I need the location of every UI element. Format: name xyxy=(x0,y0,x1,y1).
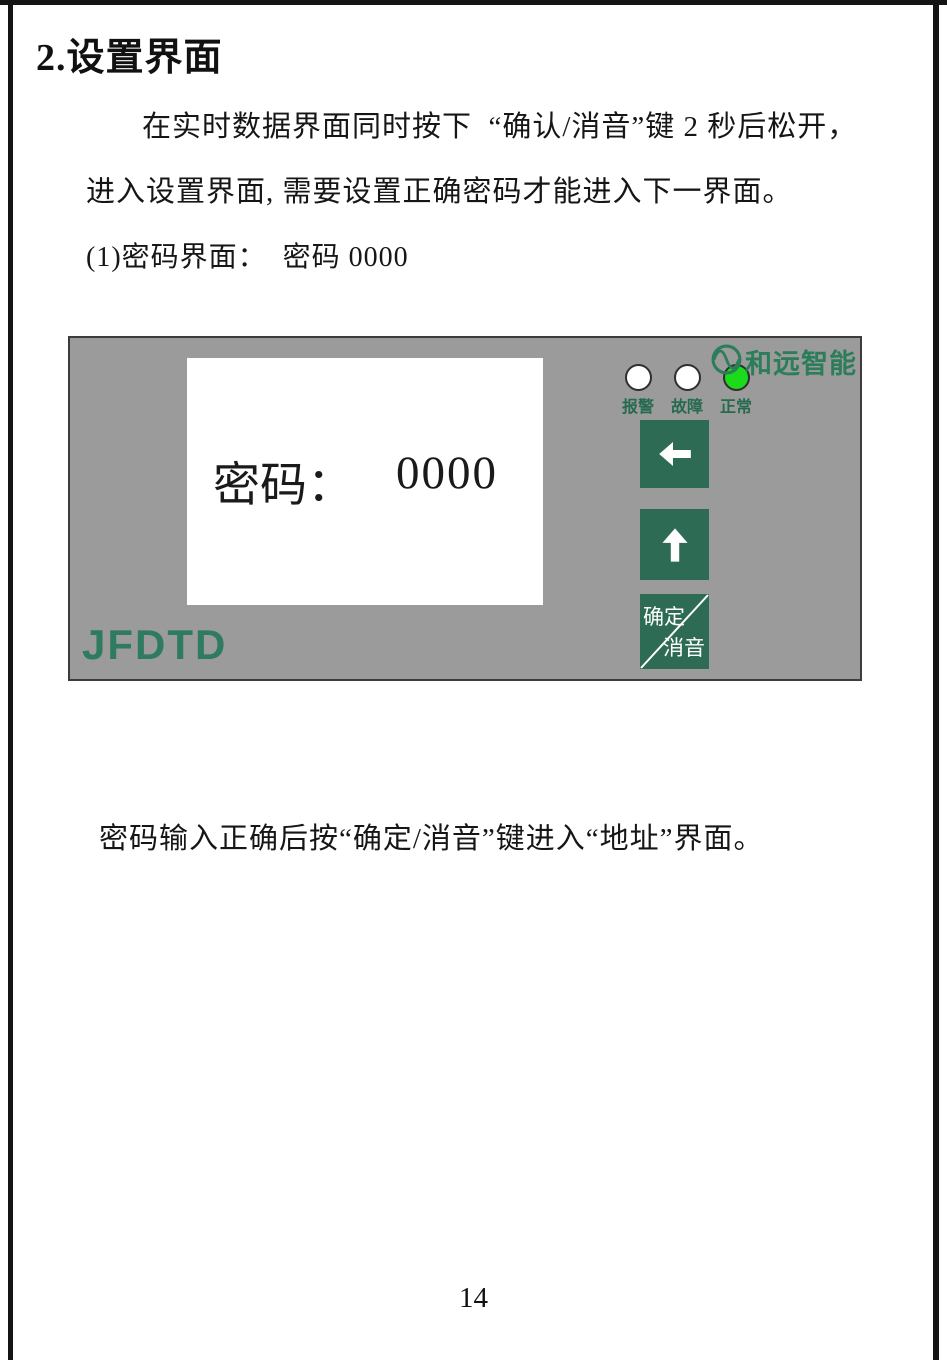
paragraph-line-1: 在实时数据界面同时按下 “确认/消音”键 2 秒后松开， xyxy=(142,103,857,145)
normal-led-label: 正常 xyxy=(720,393,752,417)
password-display: 密码：0000 xyxy=(213,446,498,515)
brand-wave-circle-icon xyxy=(710,343,743,381)
device-panel: 密码：0000 报警 故障 正常 和 xyxy=(68,336,862,681)
mute-label: 消音 xyxy=(663,632,705,662)
brand-name: 和远智能 xyxy=(745,342,857,381)
brand-logo: 和远智能 xyxy=(710,342,857,381)
up-arrow-icon xyxy=(654,524,696,566)
paragraph-confirm-hint: 密码输入正确后按“确定/消音”键进入“地址”界面。 xyxy=(99,815,764,857)
model-name: JFDTD xyxy=(82,621,227,669)
alarm-led-icon xyxy=(625,364,652,391)
device-lcd-screen: 密码：0000 xyxy=(187,358,543,605)
confirm-label: 确定 xyxy=(643,601,685,631)
paragraph-line-2: 进入设置界面, 需要设置正确密码才能进入下一界面。 xyxy=(86,168,793,210)
page-number: 14 xyxy=(0,1282,947,1315)
up-button[interactable] xyxy=(640,509,709,580)
manual-page: 2.设置界面 在实时数据界面同时按下 “确认/消音”键 2 秒后松开， 进入设置… xyxy=(0,0,947,1360)
alarm-led-label: 报警 xyxy=(622,393,654,417)
page-border-top xyxy=(0,0,947,5)
password-label: 密码： xyxy=(213,446,354,515)
page-border-left xyxy=(8,0,13,1360)
confirm-mute-button[interactable]: 确定 消音 xyxy=(640,594,709,669)
fault-led-icon xyxy=(674,364,701,391)
section-title: 2.设置界面 xyxy=(36,26,223,81)
page-border-right xyxy=(933,0,939,1360)
back-button[interactable] xyxy=(640,420,709,488)
led-alarm: 报警 xyxy=(618,364,658,417)
led-fault: 故障 xyxy=(667,364,707,417)
fault-led-label: 故障 xyxy=(671,393,703,417)
list-item-password-screen: (1)密码界面： 密码 0000 xyxy=(86,235,409,275)
left-arrow-icon xyxy=(655,434,695,474)
password-value: 0000 xyxy=(396,446,498,515)
